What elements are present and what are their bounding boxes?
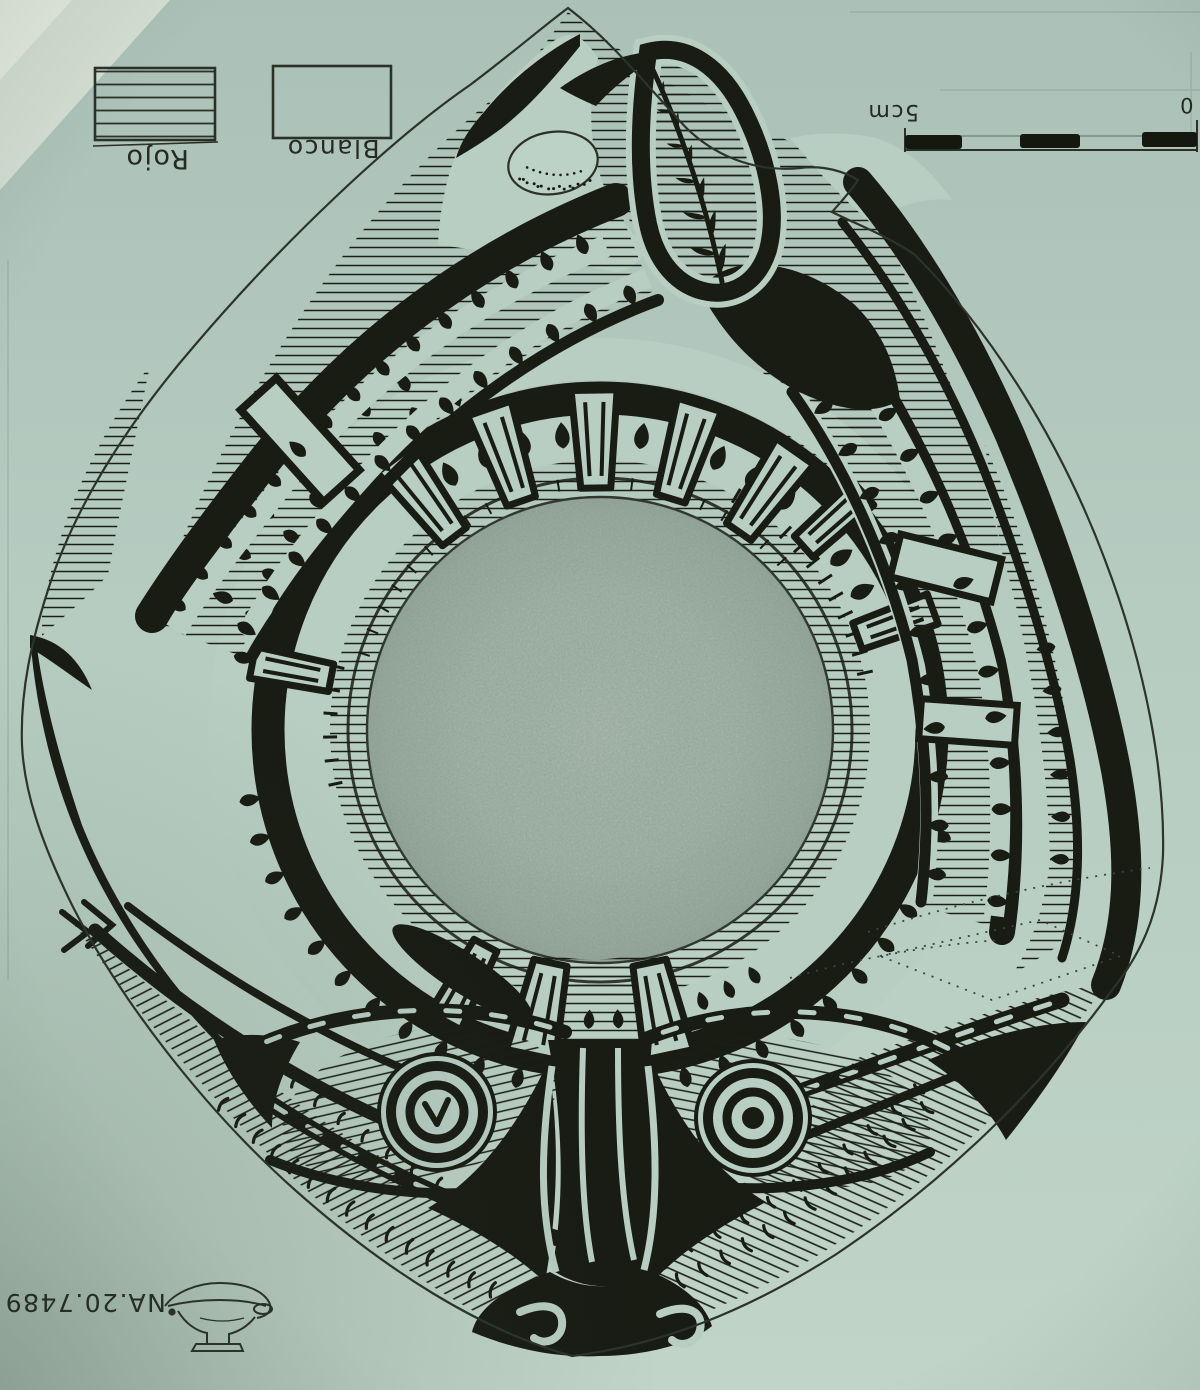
corner-shadow [0, 0, 1200, 1390]
vessel-drawing: Rojo Blanco 5cm 0 NA.20.7489 [0, 0, 1200, 1390]
scanned-sheet: Rojo Blanco 5cm 0 NA.20.7489 [0, 0, 1200, 1390]
